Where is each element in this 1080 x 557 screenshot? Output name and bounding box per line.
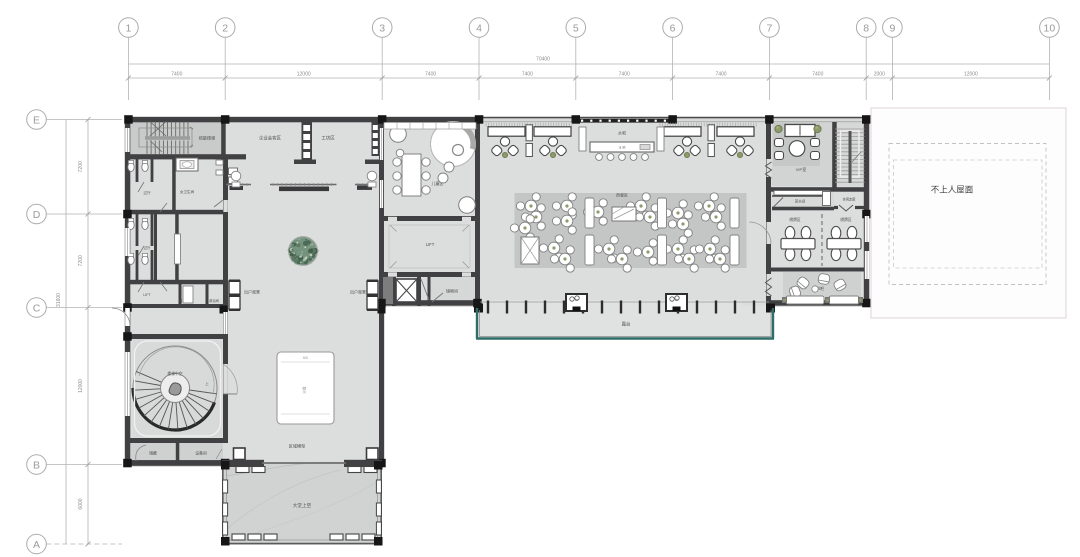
- svg-text:工坊区: 工坊区: [321, 135, 335, 142]
- svg-text:7400: 7400: [619, 72, 630, 78]
- svg-text:过厅: 过厅: [144, 245, 151, 250]
- svg-text:出户观景: 出户观景: [350, 289, 366, 295]
- svg-text:A: A: [33, 539, 40, 551]
- svg-text:茶水间: 茶水间: [795, 199, 806, 204]
- svg-text:企业会客区: 企业会客区: [259, 135, 282, 142]
- svg-text:1: 1: [125, 22, 131, 34]
- svg-text:LIFT: LIFT: [426, 242, 435, 247]
- svg-text:E: E: [33, 114, 40, 126]
- svg-text:棋牌区: 棋牌区: [789, 217, 801, 222]
- svg-text:西餐区: 西餐区: [616, 192, 628, 198]
- svg-text:上: 上: [205, 381, 209, 386]
- svg-text:B: B: [33, 459, 40, 471]
- svg-text:水 吧: 水 吧: [619, 145, 626, 150]
- svg-text:8: 8: [863, 22, 869, 34]
- svg-text:沙盘: 沙盘: [302, 386, 307, 394]
- svg-text:7200: 7200: [78, 255, 84, 266]
- svg-text:4: 4: [476, 22, 482, 34]
- svg-text:7: 7: [766, 22, 772, 34]
- svg-text:12000: 12000: [78, 379, 84, 393]
- svg-text:棋牌区: 棋牌区: [840, 217, 852, 222]
- svg-text:C: C: [33, 302, 41, 314]
- svg-text:储物间: 储物间: [446, 288, 458, 294]
- svg-text:淋浴间: 淋浴间: [209, 298, 219, 303]
- svg-text:5: 5: [573, 22, 579, 34]
- svg-text:2000: 2000: [874, 72, 885, 78]
- svg-text:2: 2: [222, 22, 228, 34]
- svg-text:大堂上空: 大堂上空: [293, 502, 312, 509]
- svg-text:7400: 7400: [812, 72, 823, 78]
- svg-text:Ch: Ch: [575, 298, 579, 302]
- svg-text:不上人屋面: 不上人屋面: [931, 185, 974, 195]
- svg-text:7400: 7400: [522, 72, 533, 78]
- svg-text:过厅: 过厅: [143, 190, 151, 195]
- svg-text:休闲走廊: 休闲走廊: [843, 197, 857, 202]
- svg-text:31600: 31600: [56, 293, 62, 307]
- svg-text:储藏: 储藏: [149, 451, 157, 456]
- svg-text:7400: 7400: [425, 72, 436, 78]
- svg-text:7400: 7400: [171, 72, 182, 78]
- svg-text:女卫生间: 女卫生间: [180, 189, 195, 194]
- svg-text:70400: 70400: [536, 57, 550, 63]
- svg-text:600: 600: [303, 356, 309, 360]
- svg-text:12000: 12000: [964, 72, 978, 78]
- svg-text:7400: 7400: [715, 72, 726, 78]
- svg-text:LIFT: LIFT: [143, 293, 151, 297]
- svg-text:设备间: 设备间: [195, 451, 207, 456]
- svg-text:9: 9: [889, 22, 895, 34]
- svg-text:6: 6: [670, 22, 676, 34]
- svg-text:出户观景: 出户观景: [244, 289, 260, 295]
- svg-text:水吧: 水吧: [618, 130, 626, 136]
- svg-text:7200: 7200: [78, 161, 84, 172]
- svg-text:楼梯中空: 楼梯中空: [167, 371, 182, 376]
- svg-text:6000: 6000: [78, 498, 84, 509]
- svg-text:露台: 露台: [622, 321, 631, 328]
- svg-text:D: D: [33, 209, 41, 221]
- svg-text:10: 10: [1044, 22, 1056, 34]
- svg-text:3: 3: [379, 22, 385, 34]
- svg-text:Ch: Ch: [675, 298, 679, 302]
- svg-text:疏散楼梯: 疏散楼梯: [199, 135, 216, 142]
- svg-text:VIP室: VIP室: [796, 166, 806, 172]
- svg-text:区域模型: 区域模型: [289, 443, 306, 450]
- svg-text:12000: 12000: [297, 72, 311, 78]
